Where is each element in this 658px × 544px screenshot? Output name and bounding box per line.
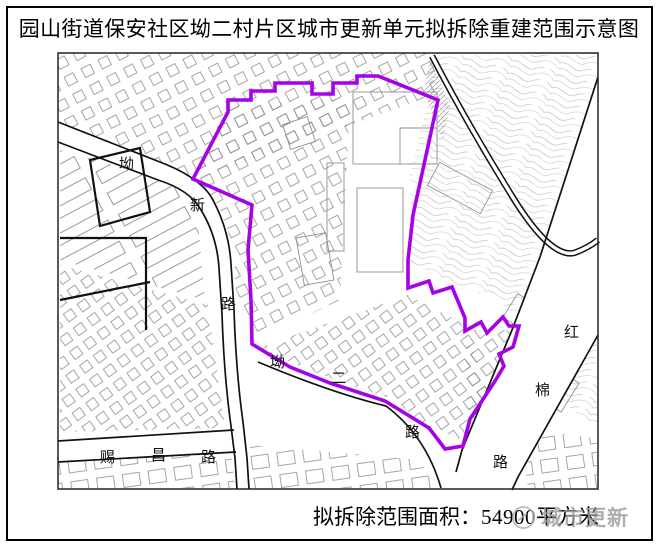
road-label: 路 <box>221 296 236 313</box>
schematic-page: 园山街道保安社区坳二村片区城市更新单元拟拆除重建范围示意图 <box>0 0 658 544</box>
road-label: 棉 <box>535 382 550 399</box>
road-label: 赐 <box>100 450 115 466</box>
watermark: 城市更新 <box>512 500 658 534</box>
map-svg: 坳 新 路 坳 二 路 赐 昌 路 红 棉 路 <box>0 0 658 544</box>
road-label: 红 <box>564 324 579 341</box>
road-label: 路 <box>405 424 420 441</box>
road-label: 路 <box>493 454 508 471</box>
watermark-logo-icon <box>512 506 535 529</box>
road-label: 坳 <box>119 156 134 173</box>
map-canvas: 坳 新 路 坳 二 路 赐 昌 路 红 棉 路 <box>0 0 658 544</box>
area-caption-label: 拟拆除范围面积： <box>313 505 481 529</box>
road-label: 新 <box>190 197 205 214</box>
road-label: 坳 <box>270 354 285 371</box>
watermark-text: 城市更新 <box>541 502 629 532</box>
road-label: 二 <box>331 371 346 387</box>
road-label: 昌 <box>151 448 166 464</box>
road-label: 路 <box>201 449 216 466</box>
